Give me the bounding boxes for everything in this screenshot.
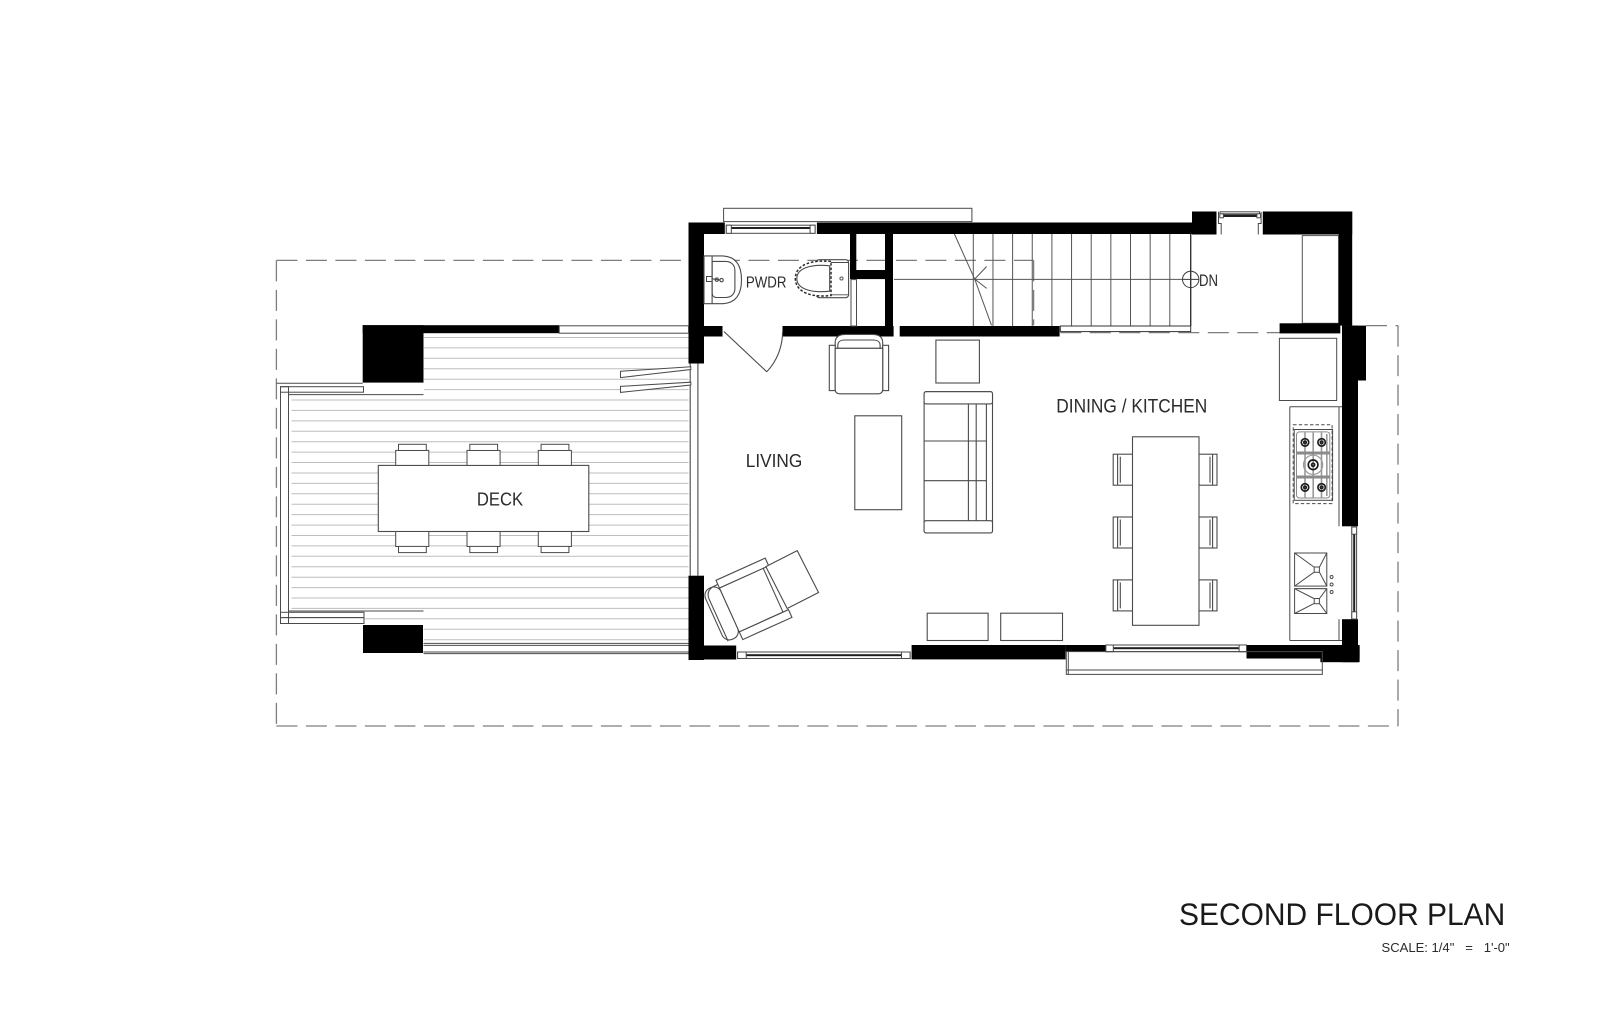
svg-text:LIVING: LIVING <box>746 450 803 471</box>
svg-text:DECK: DECK <box>477 488 524 509</box>
svg-text:PWDR: PWDR <box>746 275 787 292</box>
svg-text:SECOND FLOOR PLAN: SECOND FLOOR PLAN <box>1179 896 1505 932</box>
svg-text:DINING / KITCHEN: DINING / KITCHEN <box>1056 395 1207 417</box>
svg-text:SCALE: 1/4" = 1'-0": SCALE: 1/4" = 1'-0" <box>1382 940 1510 955</box>
svg-text:DN: DN <box>1199 271 1218 290</box>
